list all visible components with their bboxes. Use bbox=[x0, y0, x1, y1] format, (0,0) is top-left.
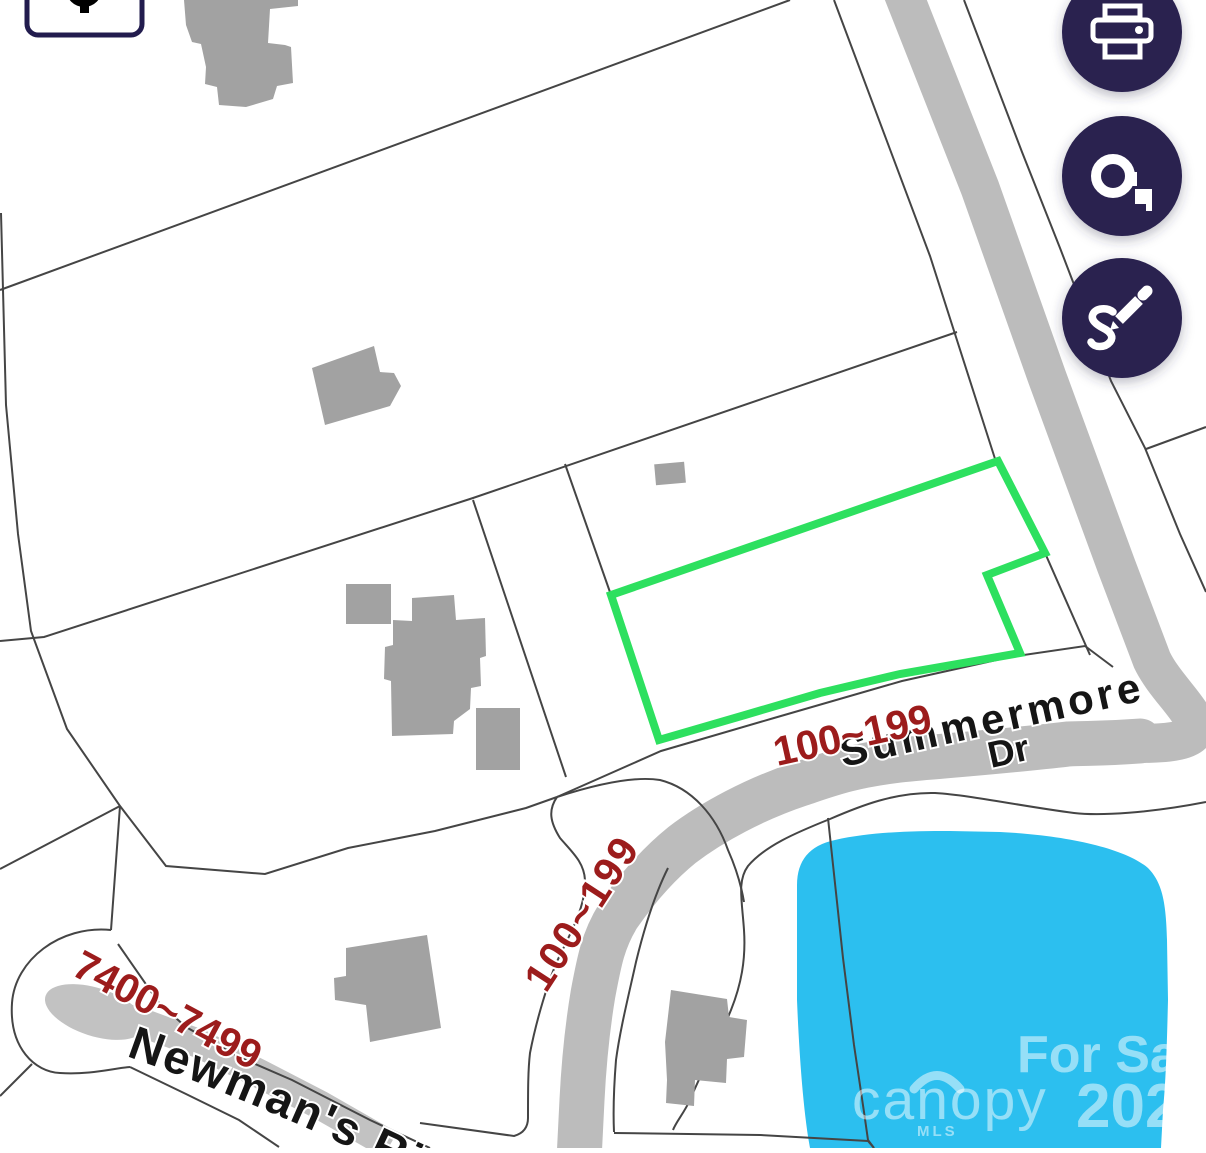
svg-text:Dr: Dr bbox=[984, 727, 1033, 776]
svg-text:2024: 2024 bbox=[1076, 1072, 1206, 1141]
svg-text:MLS: MLS bbox=[917, 1123, 958, 1140]
